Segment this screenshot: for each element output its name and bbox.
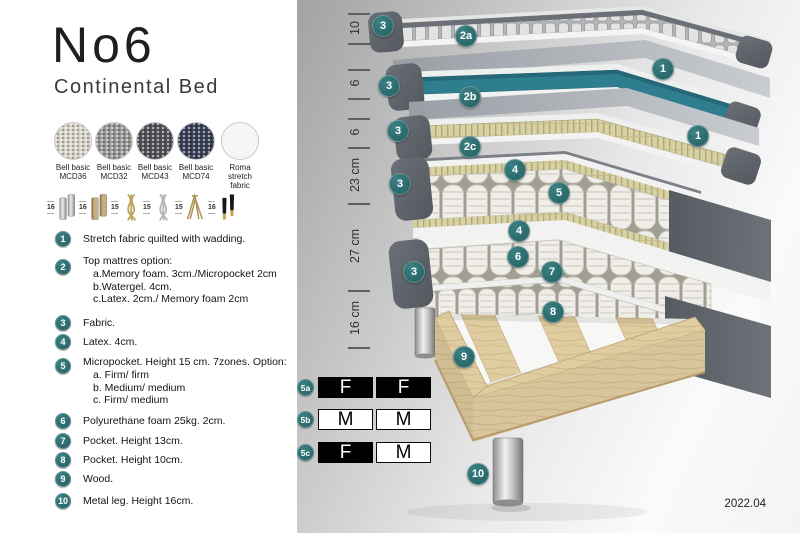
leg-height: 15: [175, 204, 183, 211]
firmness-cell: F: [318, 442, 373, 463]
callout-badge-4: 4: [508, 220, 530, 242]
fabric-swatch: Romastretch fabric: [218, 122, 262, 190]
callout-badge-2c: 2c: [459, 136, 481, 158]
callout-badge-4: 4: [504, 159, 526, 181]
ruler-label: 27 cm: [348, 221, 366, 271]
leg-option-hairpin-gold: 15: [175, 187, 206, 227]
callout-badge-2b: 2b: [459, 86, 481, 108]
leg-glyph-tapered-black-gold: [219, 191, 239, 223]
fabric-code: MCD32: [100, 172, 127, 181]
fabric-swatch-circle: [136, 122, 174, 160]
leg-height: 16: [47, 204, 55, 211]
callout-badge-8: 8: [542, 301, 564, 323]
firmness-row-5a: 5a F F: [297, 377, 434, 398]
ruler-label: 6: [348, 58, 366, 108]
fabric-swatch-circle: [177, 122, 215, 160]
legend-line: Stretch fabric quilted with wadding.: [83, 233, 297, 246]
legend-line: b.Watergel. 4cm.: [83, 281, 297, 294]
firmness-row-5b: 5b M M: [297, 409, 434, 430]
fabric-code: MCD36: [59, 172, 86, 181]
legend-line: a.Memory foam. 3cm./Micropocket 2cm: [83, 268, 297, 281]
legend-item-3: 3 Fabric.: [55, 317, 297, 330]
legend-line: Top mattres option:: [83, 255, 297, 268]
leg-option-cylinder-silver: 16: [47, 187, 78, 227]
product-title: No6: [52, 16, 156, 74]
leg-option-tapered-black-gold: 16: [208, 187, 239, 227]
legend-line: Metal leg. Height 16cm.: [83, 495, 297, 508]
callout-badge-3: 3: [387, 120, 409, 142]
callout-badge-5: 5: [548, 182, 570, 204]
legend-badge: 2: [55, 259, 71, 275]
leg-height: 15: [143, 204, 151, 211]
info-panel: No6 Continental Bed Bell basicMCD36 Bell…: [0, 0, 297, 533]
legend-badge: 8: [55, 452, 71, 468]
legend-line: Polyurethane foam 25kg. 2cm.: [83, 415, 297, 428]
legend-line: Latex. 4cm.: [83, 336, 297, 349]
fabric-name: Bell basic: [56, 163, 90, 172]
callout-badge-3: 3: [403, 261, 425, 283]
legend-item-4: 4 Latex. 4cm.: [55, 336, 297, 349]
firmness-badge: 5c: [297, 444, 314, 461]
leg-glyph-hairpin-gold: [185, 191, 206, 223]
version-stamp: 2022.04: [724, 498, 766, 510]
callout-badge-2a: 2a: [455, 25, 477, 47]
leg-glyph-twisted-silver: [154, 191, 174, 223]
legend-item-8: 8 Pocket. Height 10cm.: [55, 454, 297, 467]
callout-badge-9: 9: [453, 346, 475, 368]
leg-glyph-twisted-gold: [122, 191, 142, 223]
legend-item-5: 5 Micropocket. Height 15 cm. 7zones. Opt…: [55, 356, 297, 407]
legend-line: Pocket. Height 10cm.: [83, 454, 297, 467]
legend-badge: 3: [55, 315, 71, 331]
leg-height: 15: [111, 204, 119, 211]
ruler-label: 10: [348, 3, 366, 53]
legend-badge: 9: [55, 471, 71, 487]
fabric-code: MCD43: [141, 172, 168, 181]
leg-height: 16: [79, 204, 87, 211]
legend-badge: 1: [55, 231, 71, 247]
callout-badge-6: 6: [507, 246, 529, 268]
firmness-badge: 5a: [297, 379, 314, 396]
legend-item-2: 2 Top mattres option: a.Memory foam. 3cm…: [55, 255, 297, 306]
callout-badge-1: 1: [687, 125, 709, 147]
ruler-tick: [348, 203, 370, 205]
legend-item-10: 10 Metal leg. Height 16cm.: [55, 495, 297, 508]
leg-glyph-cylinder-brass: [90, 191, 110, 223]
fabric-swatch: Bell basicMCD36: [51, 122, 95, 181]
fabric-swatch-circle: [54, 122, 92, 160]
legend-line: Wood.: [83, 473, 297, 486]
fabric-code: MCD74: [182, 172, 209, 181]
legend-badge: 4: [55, 334, 71, 350]
fabric-name: Roma: [229, 163, 250, 172]
legend-item-9: 9 Wood.: [55, 473, 297, 486]
fabric-swatch-circle: [221, 122, 259, 160]
fabric-name: Bell basic: [97, 163, 131, 172]
leg-height: 16: [208, 204, 216, 211]
fabric-swatch: Bell basicMCD43: [133, 122, 177, 181]
firmness-badge: 5b: [297, 411, 314, 428]
legend-badge: 7: [55, 433, 71, 449]
leg-option-twisted-silver: 15: [143, 187, 174, 227]
leg-glyph-cylinder-silver: [58, 191, 78, 223]
firmness-cell: M: [376, 442, 431, 463]
fabric-swatch: Bell basicMCD74: [174, 122, 218, 181]
legend-badge: 10: [55, 493, 71, 509]
ruler-label: 16 cm: [348, 293, 366, 343]
callout-badge-10: 10: [467, 463, 489, 485]
firmness-cell: F: [376, 377, 431, 398]
legend-line: c. Firm/ medium: [83, 394, 297, 407]
legend-line: Pocket. Height 13cm.: [83, 435, 297, 448]
fabric-name: Bell basic: [138, 163, 172, 172]
ruler-tick: [348, 290, 370, 292]
fabric-swatch-circle: [95, 122, 133, 160]
legend-line: a. Firm/ firm: [83, 369, 297, 382]
product-subtitle: Continental Bed: [54, 76, 219, 99]
legend-line: b. Medium/ medium: [83, 382, 297, 395]
fabric-name: Bell basic: [179, 163, 213, 172]
ruler-label: 23 cm: [348, 150, 366, 200]
leg-option-twisted-gold: 15: [111, 187, 142, 227]
callout-badge-7: 7: [541, 261, 563, 283]
legend-item-6: 6 Polyurethane foam 25kg. 2cm.: [55, 415, 297, 428]
fabric-swatch: Bell basicMCD32: [92, 122, 136, 181]
legend-line: Micropocket. Height 15 cm. 7zones. Optio…: [83, 356, 297, 369]
legend-item-7: 7 Pocket. Height 13cm.: [55, 435, 297, 448]
ruler-tick: [348, 347, 370, 349]
firmness-cell: M: [318, 409, 373, 430]
legend-badge: 5: [55, 358, 71, 374]
firmness-cell: M: [376, 409, 431, 430]
leg-option-cylinder-brass: 16: [79, 187, 110, 227]
callout-badge-3: 3: [378, 75, 400, 97]
product-sheet: No6 Continental Bed Bell basicMCD36 Bell…: [0, 0, 800, 533]
legend-line: c.Latex. 2cm./ Memory foam 2cm: [83, 293, 297, 306]
legend-badge: 6: [55, 413, 71, 429]
firmness-row-5c: 5c F M: [297, 442, 434, 463]
callout-badge-1: 1: [652, 58, 674, 80]
callout-badge-3: 3: [389, 173, 411, 195]
callout-badge-3: 3: [372, 15, 394, 37]
firmness-cell: F: [318, 377, 373, 398]
legend-item-1: 1 Stretch fabric quilted with wadding.: [55, 233, 297, 246]
legend-line: Fabric.: [83, 317, 297, 330]
exploded-view-panel: 10 6 6 23 cm 27 cm 16 cm 3 2a 1 3 2b 1 3…: [297, 0, 800, 533]
